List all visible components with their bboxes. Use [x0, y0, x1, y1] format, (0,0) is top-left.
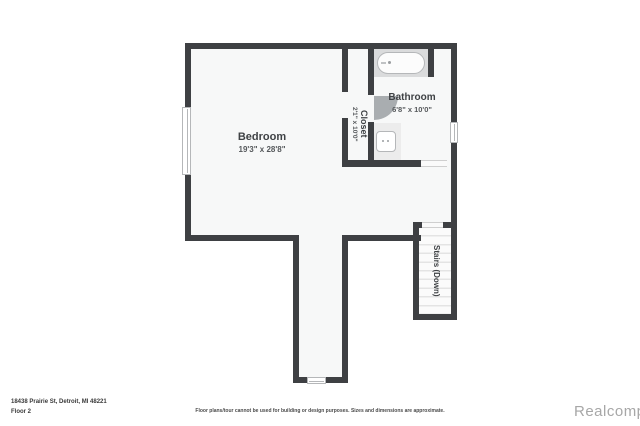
tub-drain-icon	[381, 62, 386, 64]
bedroom-name: Bedroom	[192, 131, 332, 145]
floor-corridor	[293, 235, 348, 383]
wall-stairs-top-left	[413, 222, 422, 228]
wall-stairs-top-right	[443, 222, 451, 228]
closet-name: Closet	[358, 88, 369, 160]
wall-stairs-left	[413, 222, 419, 320]
wall-stairs-bottom	[413, 314, 457, 320]
stairs-label: Stairs (Down)	[425, 232, 441, 310]
window-icon-bathroom-east	[450, 122, 458, 143]
realcomp-watermark: Realcomp	[574, 403, 640, 420]
sink-handle-icon	[387, 140, 389, 142]
address-text: 18438 Prairie St, Detroit, MI 48221	[11, 399, 107, 405]
stairs-opening	[422, 222, 443, 228]
wall-closet-left-upper	[342, 49, 348, 92]
floor-plan-page: Bedroom 19'3" x 28'8" Bathroom 6'8" x 10…	[0, 0, 640, 426]
wall-tub-stub	[428, 49, 434, 77]
wall-corridor-right	[342, 235, 348, 383]
wall-landing-bottom	[342, 235, 421, 241]
bathroom-label: Bathroom 6'8" x 10'0"	[372, 92, 452, 114]
bathroom-dims: 6'8" x 10'0"	[372, 105, 452, 114]
bedroom-dims: 19'3" x 28'8"	[192, 145, 332, 155]
closet-dims: 2'1" x 10'0"	[350, 88, 358, 160]
tub-faucet-icon	[388, 61, 391, 64]
wall-top	[185, 43, 457, 49]
wall-bedroom-bottom	[185, 235, 299, 241]
bathroom-opening-south	[421, 160, 447, 167]
bathroom-name: Bathroom	[372, 92, 452, 105]
disclaimer-text: Floor plans/tour cannot be used for buil…	[0, 408, 640, 414]
wall-corridor-left	[293, 235, 299, 383]
bedroom-label: Bedroom 19'3" x 28'8"	[192, 131, 332, 155]
sink-icon	[376, 131, 396, 152]
wall-right	[451, 43, 457, 320]
sink-handle-icon	[382, 140, 384, 142]
window-icon-corridor-south	[307, 377, 326, 384]
closet-label: Closet 2'1" x 10'0"	[345, 88, 369, 160]
window-icon-bedroom-west	[182, 107, 191, 175]
wall-bathroom-bottom	[342, 160, 421, 167]
